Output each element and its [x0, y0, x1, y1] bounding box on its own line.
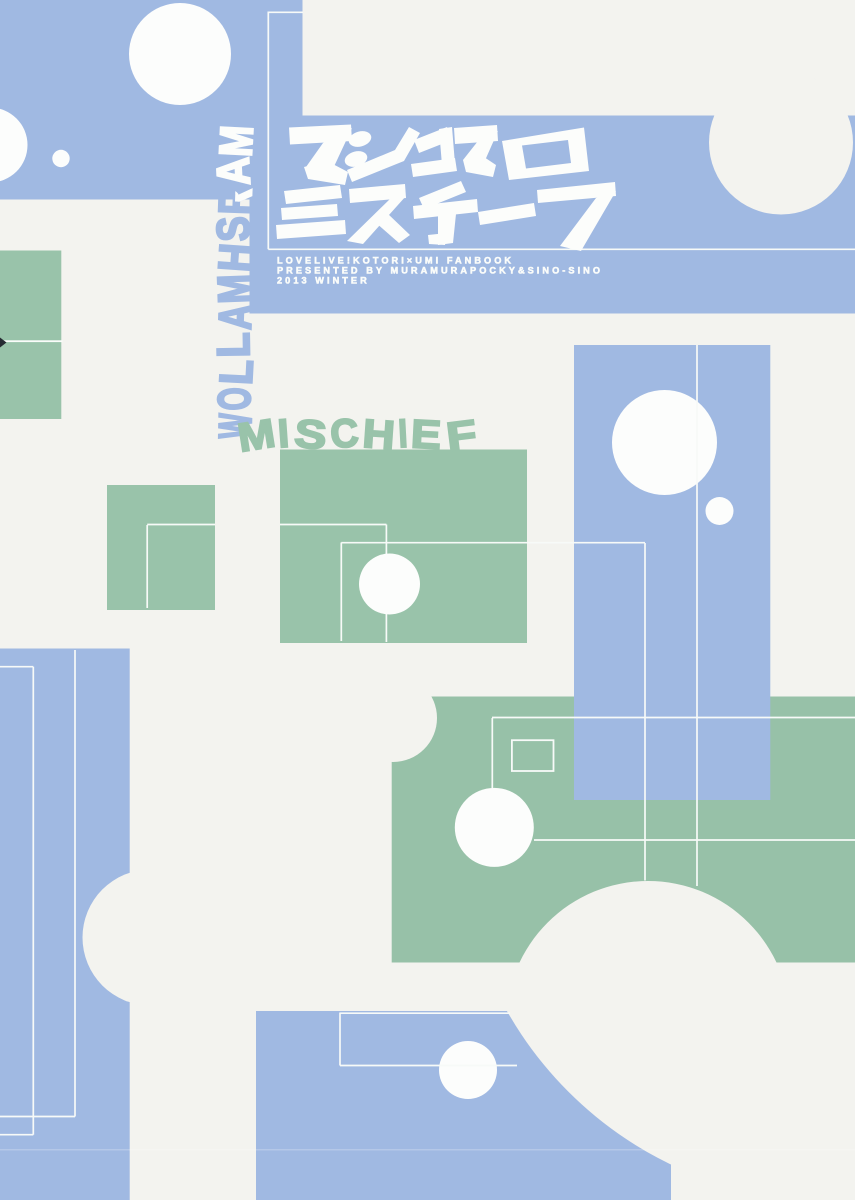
- svg-text:LOVELIVE!KOTORI×UMI FANBOOK: LOVELIVE!KOTORI×UMI FANBOOK: [277, 256, 514, 266]
- svg-text:PRESENTED BY MURAMURAPOCKY&SIN: PRESENTED BY MURAMURAPOCKY&SINO-SINO: [277, 266, 603, 276]
- svg-text:S: S: [293, 412, 329, 459]
- svg-text:M: M: [208, 274, 261, 305]
- svg-text:E: E: [410, 412, 442, 458]
- svg-text:S: S: [207, 216, 260, 243]
- svg-text:O: O: [208, 387, 261, 412]
- svg-text:L: L: [209, 358, 262, 386]
- svg-text:F: F: [444, 412, 479, 459]
- svg-text:M: M: [235, 411, 278, 460]
- svg-text:A: A: [209, 304, 262, 331]
- svg-text:C: C: [329, 411, 361, 457]
- svg-text:A: A: [206, 156, 259, 187]
- svg-text:H: H: [361, 412, 396, 458]
- svg-text:L: L: [207, 332, 259, 358]
- svg-text:2013 WINTER: 2013 WINTER: [277, 276, 370, 286]
- svg-text:M: M: [209, 124, 263, 158]
- svg-text:H: H: [208, 242, 262, 274]
